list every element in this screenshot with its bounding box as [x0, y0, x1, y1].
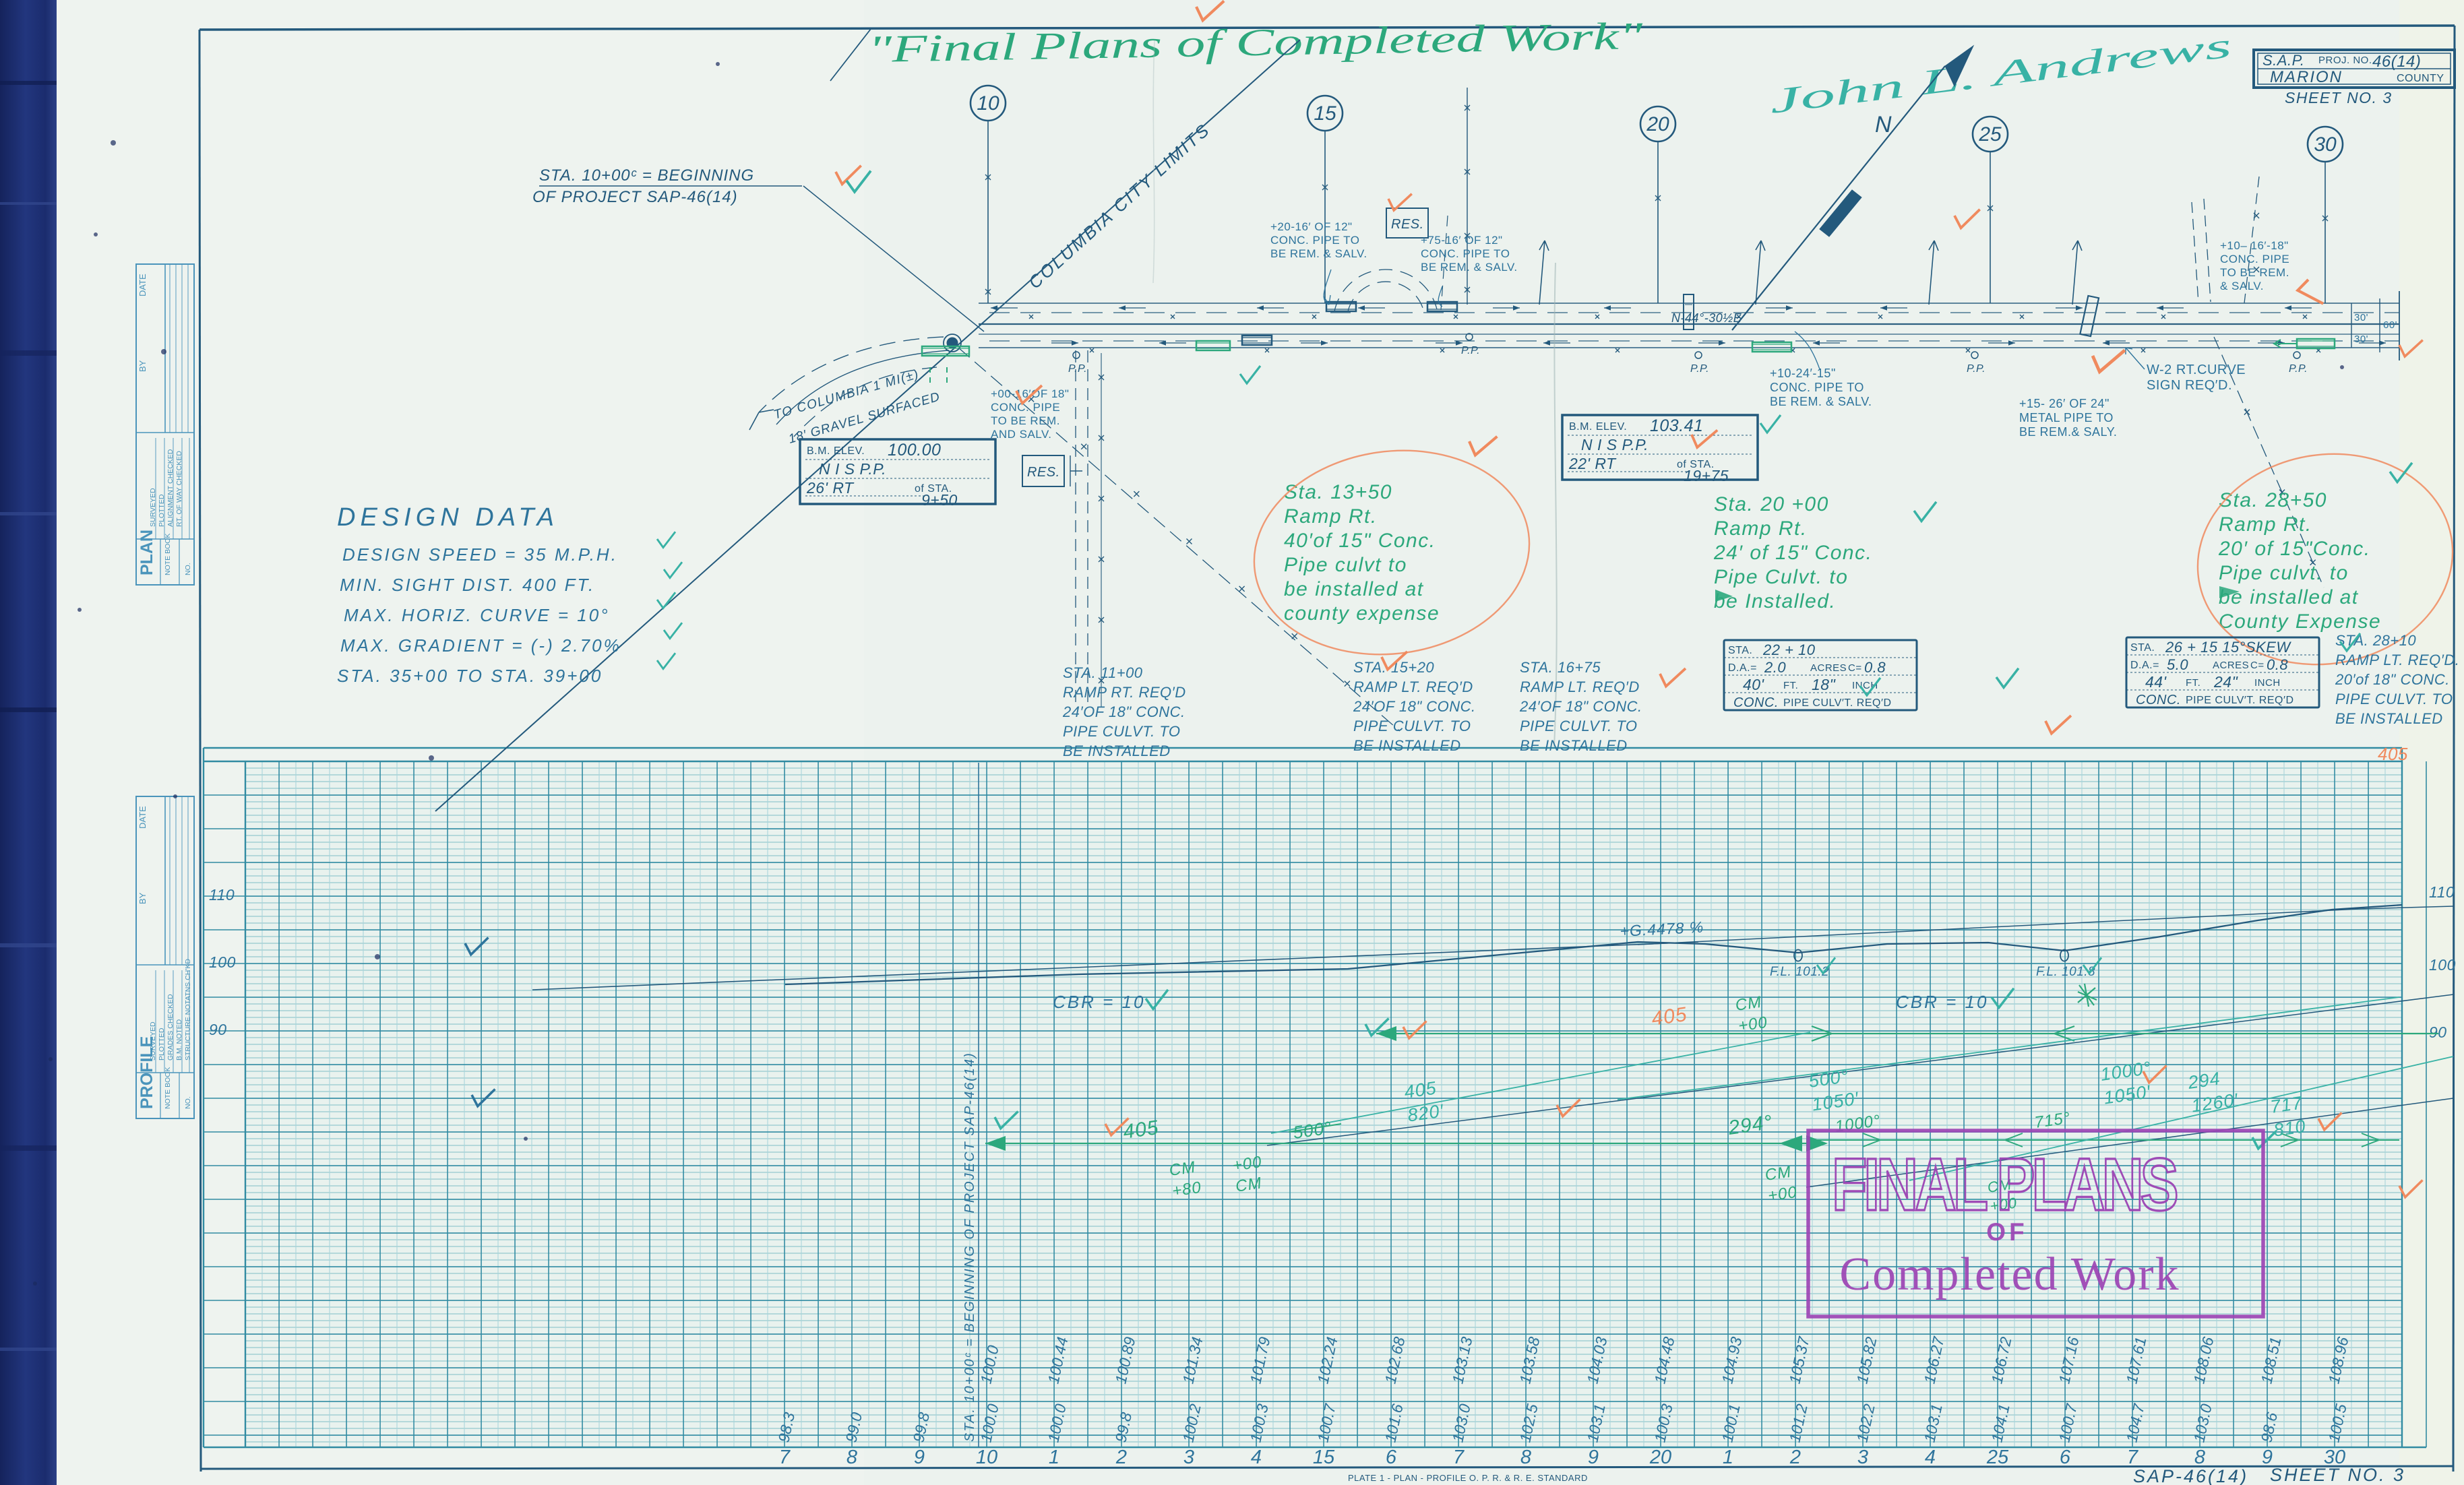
svg-text:22' RT: 22' RT [1568, 455, 1617, 472]
svg-text:F.L. 101.2: F.L. 101.2 [1770, 965, 1829, 979]
svg-text:110: 110 [209, 886, 235, 904]
svg-text:110: 110 [2429, 883, 2455, 901]
svg-text:26' RT: 26' RT [806, 479, 855, 497]
svg-text:N I S P.P.: N I S P.P. [819, 460, 886, 478]
svg-text:STA. 10+00ᶜ = BEGINNING OF PR: STA. 10+00ᶜ = BEGINNING OF PROJECT SAP-4… [962, 1052, 977, 1442]
svg-text:FT.: FT. [2186, 677, 2200, 689]
svg-text:7: 7 [2127, 1447, 2139, 1468]
svg-text:8: 8 [2194, 1447, 2205, 1468]
svg-text:1: 1 [1723, 1447, 1733, 1468]
svg-text:NOTE BOOK: NOTE BOOK [164, 534, 172, 575]
svg-text:PLOTTED: PLOTTED [158, 1028, 166, 1061]
svg-text:3: 3 [1857, 1447, 1868, 1468]
svg-text:CBR = 10: CBR = 10 [1896, 992, 1988, 1012]
svg-text:S.A.P.: S.A.P. [2262, 52, 2305, 69]
svg-text:RES.: RES. [1391, 217, 1424, 232]
svg-text:PIPE CULV′T. REQ′D: PIPE CULV′T. REQ′D [1783, 697, 1892, 709]
svg-text:CONC.: CONC. [2136, 693, 2181, 707]
svg-text:SAP-46(14): SAP-46(14) [2133, 1466, 2248, 1485]
svg-text:PROJ. NO.: PROJ. NO. [2318, 55, 2372, 66]
svg-text:405: 405 [2378, 744, 2408, 764]
svg-text:ACRES: ACRES [1810, 662, 1847, 674]
svg-text:+15- 26′ OF 24"METAL PIPE TOBE: +15- 26′ OF 24"METAL PIPE TOBE REM.& SAL… [2019, 397, 2117, 439]
svg-text:DATE: DATE [137, 806, 148, 829]
svg-text:P.P.: P.P. [2289, 363, 2308, 375]
svg-text:NOTE BOOK: NOTE BOOK [164, 1067, 172, 1109]
svg-text:DATE: DATE [137, 274, 148, 296]
svg-text:20: 20 [1646, 113, 1669, 135]
svg-text:PLAN: PLAN [137, 530, 156, 575]
svg-text:STA.: STA. [2130, 642, 2155, 654]
svg-text:ACRES: ACRES [2213, 660, 2249, 671]
svg-text:8: 8 [846, 1447, 857, 1468]
svg-text:90: 90 [209, 1021, 227, 1038]
svg-text:STA.: STA. [1728, 645, 1752, 656]
svg-text:OF: OF [1986, 1218, 2027, 1246]
svg-text:20: 20 [1649, 1447, 1671, 1468]
svg-text:9+50: 9+50 [921, 491, 958, 509]
svg-text:P.P.: P.P. [1461, 345, 1480, 356]
svg-text:FINAL PLANS: FINAL PLANS [1832, 1143, 2179, 1226]
svg-text:ALIGNMENT CHECKED: ALIGNMENT CHECKED [166, 449, 175, 527]
svg-text:BY: BY [137, 892, 148, 904]
svg-text:0.8: 0.8 [1864, 659, 1886, 676]
svg-text:40': 40' [1743, 676, 1765, 693]
svg-text:B.M. ELEV.: B.M. ELEV. [1569, 421, 1627, 433]
svg-text:100: 100 [2429, 956, 2456, 974]
svg-text:4: 4 [1925, 1447, 1936, 1468]
svg-text:P.P.: P.P. [1967, 363, 1985, 375]
svg-text:46(14): 46(14) [2372, 53, 2421, 71]
svg-text:9: 9 [1588, 1447, 1599, 1468]
svg-text:RES.: RES. [1027, 465, 1060, 480]
svg-text:9: 9 [914, 1447, 925, 1468]
svg-text:N-44°-30½E: N-44°-30½E [1671, 311, 1742, 325]
svg-text:3: 3 [1183, 1447, 1194, 1468]
svg-text:PIPE CULV′T. REQ′D: PIPE CULV′T. REQ′D [2186, 695, 2294, 706]
svg-text:44': 44' [2145, 673, 2167, 691]
svg-text:PLOTTED: PLOTTED [158, 494, 166, 527]
svg-text:10: 10 [977, 92, 999, 115]
svg-text:10: 10 [976, 1447, 997, 1468]
svg-text:PLATE 1 - PLAN - PROFILE O.: PLATE 1 - PLAN - PROFILE O. P. R. & R. E… [1348, 1473, 1588, 1483]
svg-text:7: 7 [779, 1447, 791, 1468]
svg-text:P.P.: P.P. [1068, 363, 1087, 375]
svg-text:MARION: MARION [2270, 68, 2343, 86]
svg-text:COUNTY: COUNTY [2397, 73, 2444, 84]
svg-text:24": 24" [2213, 673, 2239, 691]
svg-text:FT.: FT. [1783, 680, 1798, 691]
svg-text:22 + 10: 22 + 10 [1762, 641, 1816, 658]
svg-text:60': 60' [2383, 319, 2397, 331]
svg-text:103.41: 103.41 [1650, 416, 1703, 435]
svg-text:D.A.=: D.A.= [1728, 662, 1757, 674]
svg-text:NO.: NO. [184, 1096, 192, 1109]
svg-text:7: 7 [1453, 1447, 1465, 1468]
svg-text:2.0: 2.0 [1764, 659, 1786, 676]
svg-text:N I S P.P.: N I S P.P. [1581, 436, 1649, 453]
svg-text:BY: BY [137, 360, 148, 372]
svg-text:OF PROJECT SAP-46(14): OF PROJECT SAP-46(14) [532, 188, 738, 206]
svg-text:1: 1 [1049, 1447, 1059, 1468]
svg-text:STA. 10+00ᶜ = BEGINNING: STA. 10+00ᶜ = BEGINNING [539, 166, 754, 185]
svg-text:C=: C= [2250, 660, 2265, 671]
svg-text:PROFILE: PROFILE [137, 1036, 156, 1109]
svg-text:DESIGN DATA: DESIGN DATA [337, 503, 559, 532]
svg-text:18": 18" [1812, 676, 1837, 693]
svg-text:NO.: NO. [184, 563, 192, 575]
svg-text:SHEET NO. 3: SHEET NO. 3 [2270, 1465, 2405, 1485]
svg-text:4: 4 [1251, 1447, 1262, 1468]
svg-text:90: 90 [2429, 1023, 2447, 1041]
svg-text:DESIGN SPEED = 35 M.P.H.: DESIGN SPEED = 35 M.P.H. [342, 544, 618, 565]
svg-text:P.P.: P.P. [1690, 363, 1709, 375]
svg-text:W-2 RT.CURVESIGN REQ′D.: W-2 RT.CURVESIGN REQ′D. [2147, 362, 2246, 393]
svg-text:5.0: 5.0 [2167, 656, 2188, 673]
svg-text:F.L. 101.8: F.L. 101.8 [2036, 965, 2095, 979]
svg-text:26 + 15 15°SKEW: 26 + 15 15°SKEW [2165, 639, 2291, 656]
svg-text:N: N [1875, 112, 1892, 137]
svg-text:RT. OF WAY CHECKED: RT. OF WAY CHECKED [175, 451, 183, 527]
svg-text:B.M. ELEV.: B.M. ELEV. [807, 445, 865, 457]
svg-text:B.M. NOTED: B.M. NOTED [175, 1019, 183, 1061]
svg-text:25: 25 [1986, 1447, 2009, 1468]
svg-text:100: 100 [209, 953, 236, 971]
svg-text:D.A.=: D.A.= [2130, 660, 2159, 671]
svg-text:MAX. HORIZ. CURVE = 10°: MAX. HORIZ. CURVE = 10° [344, 605, 610, 625]
svg-text:MIN. SIGHT DIST. 400 FT.: MIN. SIGHT DIST. 400 FT. [340, 575, 595, 595]
svg-text:15: 15 [1313, 1447, 1335, 1468]
svg-text:8: 8 [1520, 1447, 1531, 1468]
svg-text:2: 2 [1789, 1447, 1801, 1468]
svg-text:25: 25 [1978, 123, 2002, 146]
svg-text:6: 6 [2060, 1447, 2071, 1468]
svg-text:Completed Work: Completed Work [1839, 1249, 2180, 1300]
svg-text:CONC.: CONC. [1733, 695, 1779, 710]
svg-text:SURVEYED: SURVEYED [149, 488, 157, 527]
svg-text:CBR = 10: CBR = 10 [1053, 992, 1145, 1012]
svg-text:C=: C= [1848, 662, 1862, 674]
svg-text:INCH: INCH [2254, 677, 2281, 689]
svg-text:100.00: 100.00 [888, 441, 941, 460]
svg-text:19+75: 19+75 [1684, 467, 1729, 484]
svg-text:15: 15 [1314, 102, 1336, 125]
svg-text:6: 6 [1386, 1447, 1397, 1468]
svg-text:STA. 35+00 TO STA. 39+00: STA. 35+00 TO STA. 39+00 [337, 666, 603, 686]
svg-text:MAX. GRADIENT = (-) 2.70%: MAX. GRADIENT = (-) 2.70% [340, 635, 621, 656]
svg-text:0.8: 0.8 [2267, 656, 2288, 673]
svg-text:30': 30' [2354, 312, 2368, 323]
svg-text:STRUCTURE NOTATNS CH'KD: STRUCTURE NOTATNS CH'KD [184, 959, 192, 1061]
svg-text:GRADES CHECKED: GRADES CHECKED [166, 994, 175, 1061]
svg-text:30: 30 [2314, 133, 2337, 156]
svg-text:SHEET NO. 3: SHEET NO. 3 [2285, 89, 2393, 106]
svg-text:2: 2 [1115, 1447, 1127, 1468]
